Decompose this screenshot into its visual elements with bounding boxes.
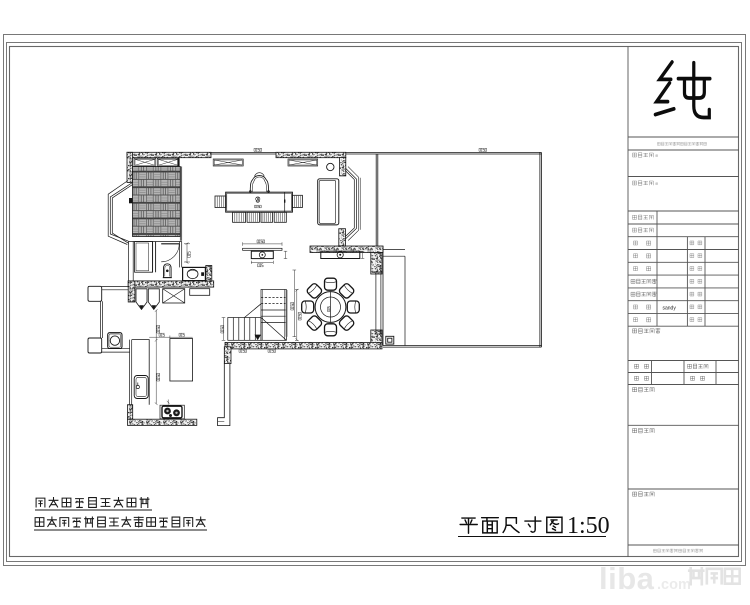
svg-text:1:50: 1:50 xyxy=(567,513,610,539)
svg-text:sandy: sandy xyxy=(663,305,677,311)
svg-text:.com: .com xyxy=(657,577,691,593)
svg-text:liba: liba xyxy=(599,561,655,596)
